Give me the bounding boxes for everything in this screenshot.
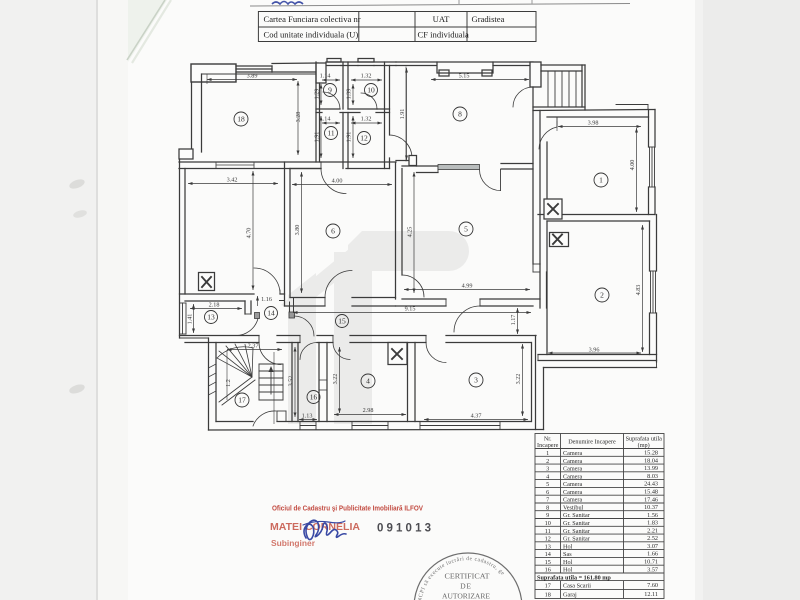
svg-text:11: 11: [545, 528, 551, 535]
svg-text:5: 5: [546, 481, 549, 488]
svg-text:Incapere: Incapere: [537, 442, 559, 449]
svg-text:Camera: Camera: [563, 497, 582, 504]
svg-text:Oficiul de Cadastru şi Publici: Oficiul de Cadastru şi Publicitate Imobi…: [272, 506, 423, 513]
svg-text:Suprafata utila = 161.80 mp: Suprafata utila = 161.80 mp: [537, 574, 611, 581]
svg-text:12: 12: [360, 134, 368, 143]
svg-text:6: 6: [546, 489, 549, 496]
svg-text:1.91: 1.91: [399, 109, 406, 120]
svg-text:18.04: 18.04: [644, 457, 658, 464]
svg-text:Gr. Sanitar: Gr. Sanitar: [563, 520, 590, 527]
svg-text:10: 10: [367, 86, 375, 95]
svg-text:Camera: Camera: [563, 473, 582, 480]
svg-text:3.28: 3.28: [295, 112, 302, 123]
svg-text:12.11: 12.11: [644, 591, 658, 598]
svg-text:3.22: 3.22: [332, 374, 339, 385]
svg-text:3: 3: [474, 376, 478, 385]
svg-text:4.00: 4.00: [332, 178, 343, 185]
svg-text:1.13: 1.13: [302, 413, 313, 420]
svg-text:MATEI CORNELIA: MATEI CORNELIA: [270, 522, 360, 533]
svg-text:Vestibul: Vestibul: [563, 504, 584, 511]
svg-text:3.57: 3.57: [647, 566, 658, 573]
svg-text:CERTIFICAT: CERTIFICAT: [445, 572, 490, 581]
svg-text:1: 1: [546, 450, 549, 457]
svg-text:2: 2: [546, 458, 549, 465]
svg-text:15: 15: [338, 317, 346, 326]
svg-text:1.14: 1.14: [320, 116, 331, 123]
svg-text:17: 17: [545, 583, 551, 590]
svg-text:1.66: 1.66: [647, 551, 658, 558]
svg-text:16: 16: [545, 567, 551, 574]
svg-text:UAT: UAT: [433, 14, 450, 24]
svg-text:3: 3: [546, 466, 549, 473]
svg-text:15: 15: [545, 559, 551, 566]
svg-text:7.60: 7.60: [647, 582, 658, 589]
svg-text:17.46: 17.46: [644, 496, 658, 503]
svg-text:Hol: Hol: [563, 543, 573, 550]
svg-text:Cartea Funciara colectiva nr: Cartea Funciara colectiva nr: [264, 14, 361, 24]
svg-text:Camera: Camera: [563, 466, 582, 473]
svg-text:Sas: Sas: [563, 551, 572, 558]
svg-text:3.42: 3.42: [227, 177, 238, 184]
svg-text:18: 18: [237, 115, 245, 124]
svg-text:2.21: 2.21: [647, 527, 658, 534]
svg-text:Gradistea: Gradistea: [472, 14, 505, 24]
svg-text:Gr. Sanitar: Gr. Sanitar: [563, 512, 590, 519]
svg-text:24.43: 24.43: [644, 481, 658, 488]
svg-text:18: 18: [545, 592, 551, 599]
svg-text:7: 7: [546, 497, 549, 504]
svg-text:16: 16: [310, 393, 318, 402]
svg-text:AUTORIZARE: AUTORIZARE: [442, 592, 490, 600]
svg-text:11: 11: [327, 129, 334, 138]
svg-text:3.89: 3.89: [247, 73, 258, 80]
svg-text:8: 8: [458, 110, 462, 119]
svg-text:Cod unitate individuala (U): Cod unitate individuala (U): [264, 30, 359, 40]
svg-text:4.83: 4.83: [635, 285, 642, 296]
svg-text:1.2: 1.2: [225, 379, 232, 387]
svg-text:2.37: 2.37: [248, 343, 259, 350]
svg-text:8.03: 8.03: [647, 473, 658, 480]
svg-text:1.41: 1.41: [187, 314, 194, 325]
svg-text:Garaj: Garaj: [563, 592, 577, 599]
svg-text:17: 17: [238, 396, 246, 405]
svg-text:13: 13: [545, 543, 551, 550]
svg-text:5.15: 5.15: [459, 73, 470, 80]
svg-text:Camera: Camera: [563, 481, 582, 488]
svg-text:1.16: 1.16: [261, 296, 272, 303]
svg-text:14: 14: [545, 551, 551, 558]
svg-text:3.22: 3.22: [515, 374, 522, 385]
svg-text:13.99: 13.99: [644, 465, 658, 472]
svg-text:1.17: 1.17: [510, 315, 517, 326]
svg-text:Casa Scarii: Casa Scarii: [563, 583, 591, 590]
svg-text:(mp): (mp): [638, 442, 650, 449]
svg-text:Camera: Camera: [563, 489, 582, 496]
svg-text:12: 12: [545, 536, 551, 543]
svg-text:4.00: 4.00: [629, 160, 636, 171]
svg-text:2.52: 2.52: [647, 535, 658, 542]
svg-text:2.98: 2.98: [363, 407, 374, 414]
svg-text:4.99: 4.99: [462, 283, 473, 290]
svg-text:Hol: Hol: [563, 559, 573, 566]
svg-text:Subinginer: Subinginer: [271, 539, 315, 548]
svg-text:3.52: 3.52: [288, 376, 295, 387]
svg-text:1.56: 1.56: [647, 512, 658, 519]
svg-text:3.80: 3.80: [294, 225, 301, 236]
svg-text:1.29: 1.29: [314, 89, 321, 100]
svg-text:14: 14: [267, 309, 275, 318]
svg-text:9: 9: [546, 512, 549, 519]
svg-text:CF individuala: CF individuala: [418, 29, 470, 39]
svg-text:4.25: 4.25: [407, 227, 414, 238]
svg-text:2.18: 2.18: [209, 302, 220, 309]
svg-text:4.70: 4.70: [246, 228, 253, 239]
svg-text:1.83: 1.83: [647, 520, 658, 527]
svg-text:3.96: 3.96: [589, 347, 600, 354]
svg-text:5: 5: [464, 225, 468, 234]
svg-text:10.71: 10.71: [644, 559, 658, 566]
svg-text:Hol: Hol: [563, 567, 573, 574]
svg-text:15.48: 15.48: [644, 489, 658, 496]
svg-text:1.39: 1.39: [346, 89, 353, 100]
svg-text:1.14: 1.14: [320, 73, 331, 80]
svg-text:9: 9: [328, 86, 332, 95]
svg-text:3.07: 3.07: [647, 543, 658, 550]
svg-text:1.91: 1.91: [314, 132, 321, 143]
svg-text:4.37: 4.37: [471, 413, 482, 420]
svg-text:1: 1: [599, 176, 603, 185]
svg-text:9.15: 9.15: [405, 306, 416, 313]
svg-text:1.91: 1.91: [346, 132, 353, 143]
svg-text:3.98: 3.98: [588, 120, 599, 127]
svg-text:Gr. Sanitar: Gr. Sanitar: [563, 536, 590, 543]
svg-text:4: 4: [366, 377, 370, 386]
svg-text:Camera: Camera: [563, 450, 582, 457]
svg-text:Gr. Sanitar: Gr. Sanitar: [563, 528, 590, 535]
svg-text:DE: DE: [460, 582, 472, 591]
svg-text:Camera: Camera: [563, 458, 582, 465]
svg-text:2: 2: [600, 291, 604, 300]
svg-text:1.32: 1.32: [361, 116, 372, 123]
svg-text:10: 10: [545, 520, 551, 527]
svg-text:6: 6: [331, 227, 335, 236]
svg-text:15.28: 15.28: [644, 450, 658, 457]
svg-text:Denumire Incapere: Denumire Incapere: [568, 439, 616, 446]
svg-text:1.32: 1.32: [361, 73, 372, 80]
svg-text:10.37: 10.37: [644, 504, 658, 511]
svg-text:8: 8: [546, 504, 549, 511]
svg-text:13: 13: [207, 313, 215, 322]
svg-text:4: 4: [546, 473, 549, 480]
